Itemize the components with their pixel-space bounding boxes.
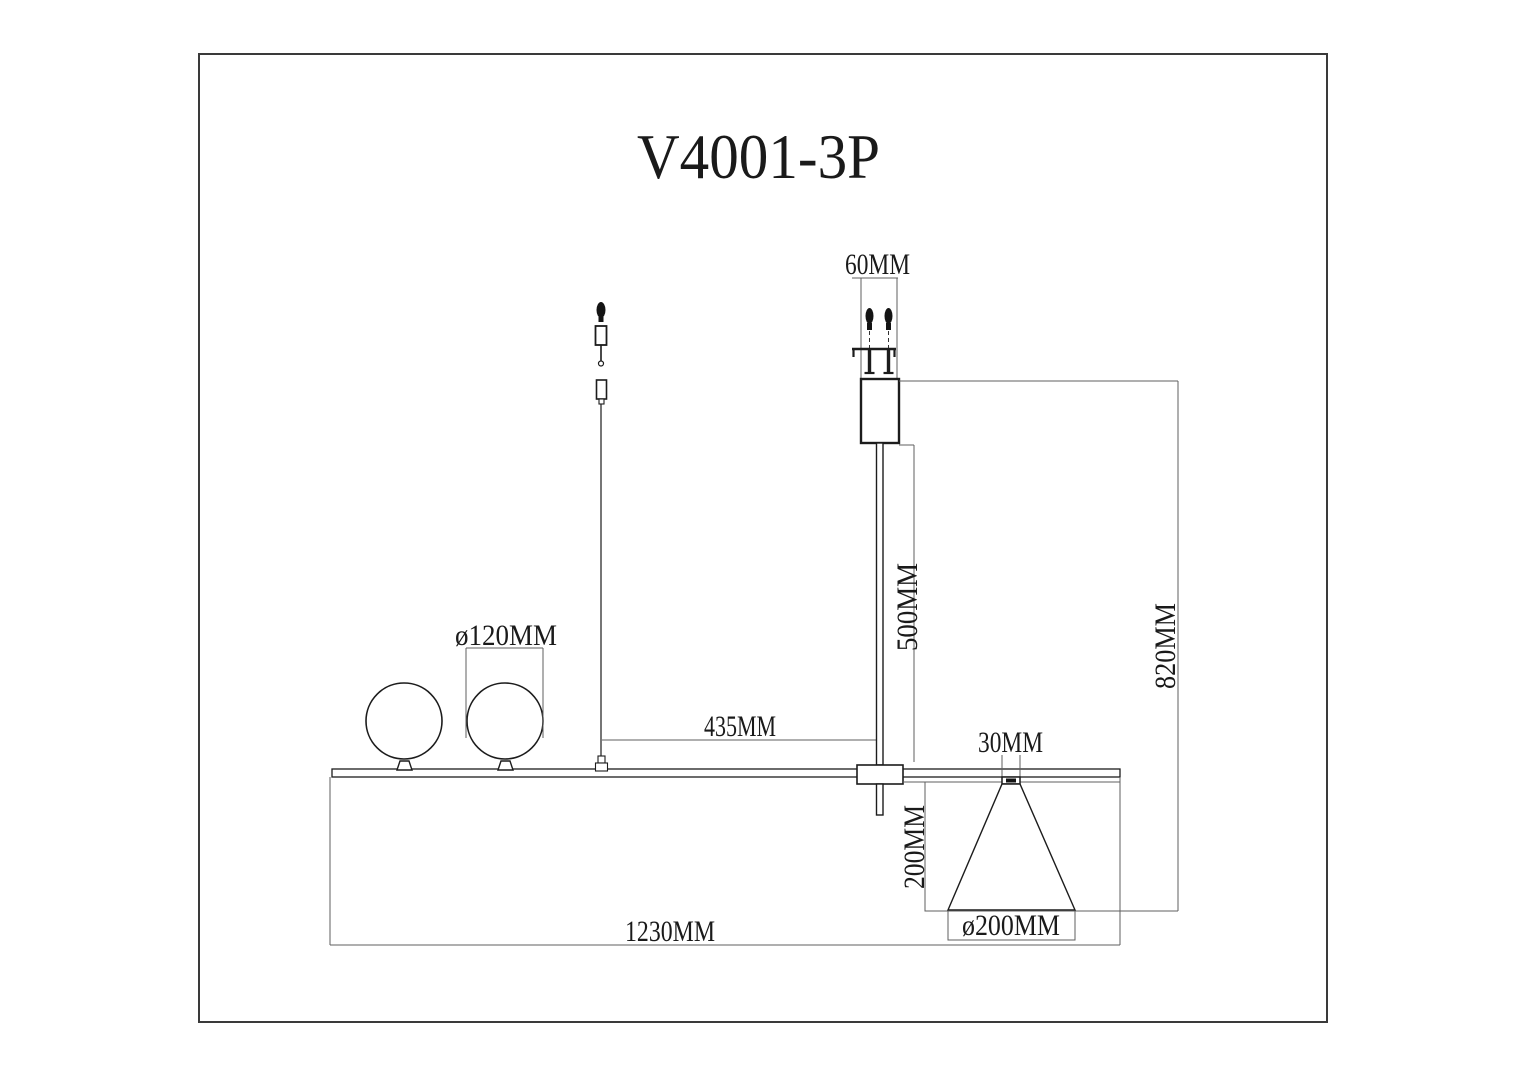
cone-shade [948, 784, 1075, 910]
mounting-bracket [852, 349, 896, 373]
dim-neck-width: 30MM [978, 726, 1043, 759]
suspension-wire-assembly [596, 302, 608, 771]
page-title: V4001-3P [637, 121, 880, 192]
dim-shade-height: 200MM [898, 805, 931, 889]
technical-drawing: V4001-3P ø120MM [0, 0, 1529, 1080]
globe-1 [366, 683, 442, 759]
wire-top-tube [596, 326, 607, 345]
wire-anchor-screw [597, 302, 606, 318]
dim-wire-offset-group: 435MM [602, 710, 876, 743]
wire-connector [597, 380, 607, 399]
mount-screw-left-nut [867, 323, 872, 330]
glass-globes [366, 683, 543, 770]
mount-screw-right-nut [886, 323, 891, 330]
mount-screw-right [885, 308, 893, 324]
ceiling-canopy [861, 379, 899, 443]
cone-shade-group: 200MM 30MM ø200MM [898, 726, 1178, 942]
junction-box [857, 765, 903, 784]
dim-rod-length-group: 500MM [891, 445, 924, 762]
dim-wire-offset: 435MM [704, 710, 776, 743]
dim-shade-diameter: ø200MM [962, 909, 1060, 942]
wire-ferrule-top [598, 756, 605, 763]
drawing-canvas: V4001-3P ø120MM [0, 0, 1529, 1080]
wire-connector-nub [599, 399, 604, 404]
shade-neck-collar [1006, 779, 1016, 783]
globe-2 [467, 683, 543, 759]
ceiling-mount: 60MM [845, 248, 910, 443]
dim-fixture-length: 1230MM [625, 915, 715, 948]
dim-rod-length: 500MM [891, 563, 924, 651]
wire-stem-ball [599, 361, 604, 366]
rod-stub [877, 784, 884, 815]
globe-socket-2 [498, 761, 513, 770]
dim-canopy-width: 60MM [845, 248, 910, 281]
drawing-frame [199, 54, 1327, 1022]
dim-globe-diameter: ø120MM [455, 619, 557, 652]
dim-total-drop: 820MM [1149, 603, 1182, 689]
mount-screw-left [866, 308, 874, 324]
wire-ferrule-base [596, 763, 608, 771]
wire-anchor-nut [599, 317, 604, 322]
globe-socket-1 [397, 761, 412, 770]
hanging-rod [877, 443, 884, 765]
